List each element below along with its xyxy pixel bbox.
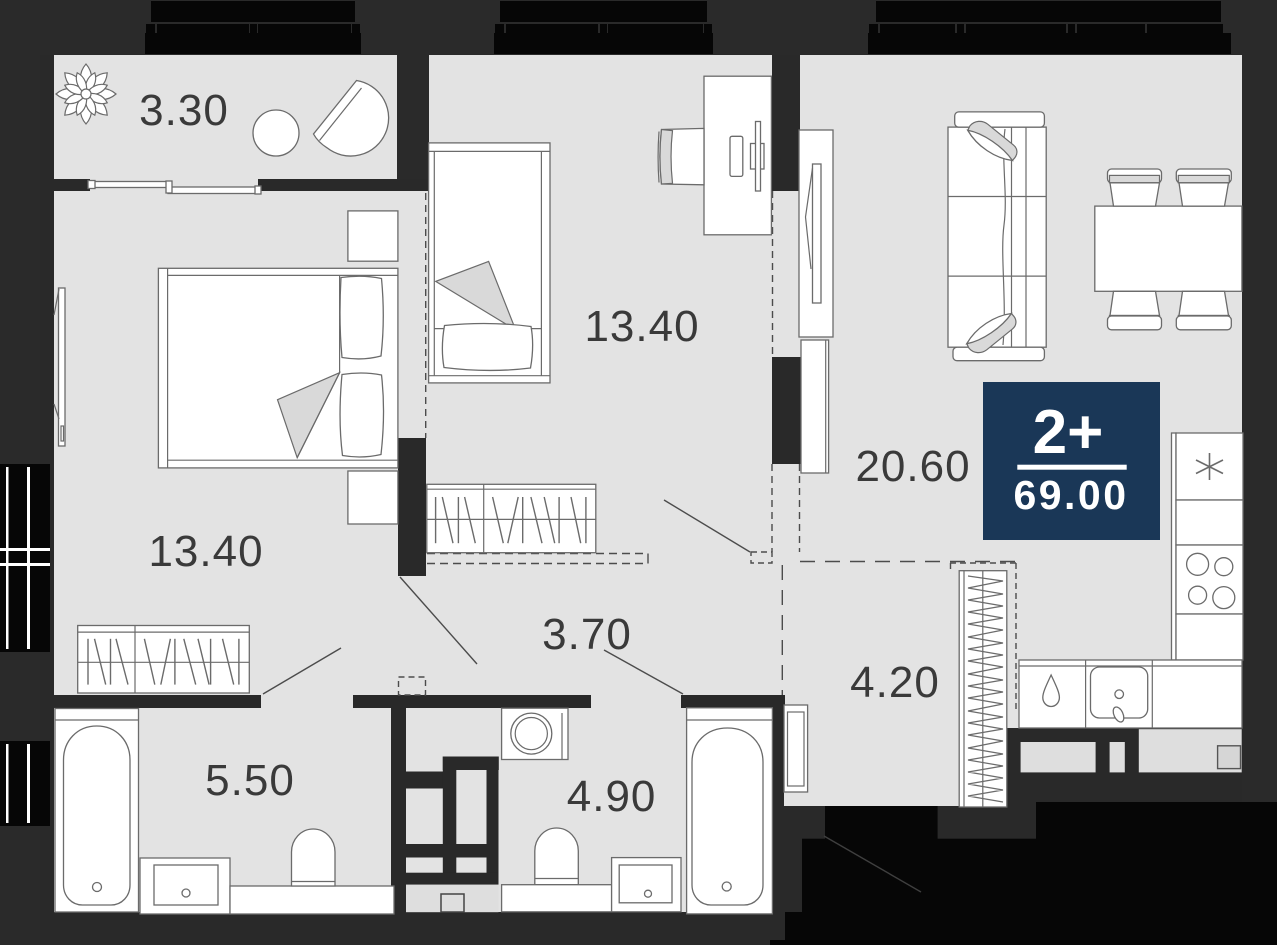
svg-text:69.00: 69.00 — [1013, 472, 1128, 518]
svg-text:4.90: 4.90 — [567, 772, 657, 821]
svg-text:4.20: 4.20 — [850, 658, 940, 707]
svg-text:5.50: 5.50 — [205, 756, 295, 805]
svg-text:2+: 2+ — [1033, 398, 1104, 467]
svg-text:20.60: 20.60 — [855, 442, 970, 491]
svg-text:13.40: 13.40 — [584, 302, 699, 351]
svg-text:3.70: 3.70 — [542, 610, 632, 659]
svg-text:3.30: 3.30 — [139, 86, 229, 135]
svg-text:13.40: 13.40 — [148, 527, 263, 576]
